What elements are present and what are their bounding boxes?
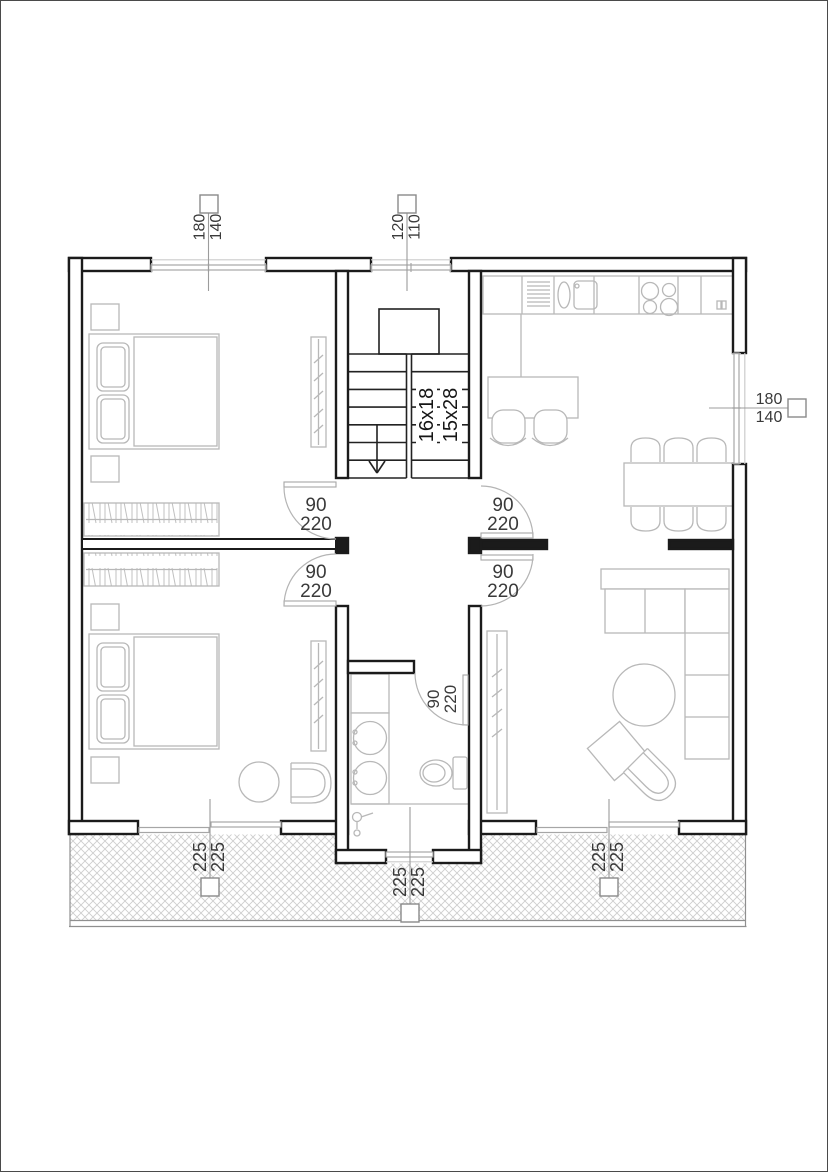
label-door-bathroom: 90 220: [424, 685, 460, 713]
dining-chair-row-top: [631, 438, 726, 462]
wall-right-lower: [733, 464, 746, 834]
wall-right-upper: [733, 258, 746, 353]
wall-hall-east-stub: [469, 538, 481, 553]
label-stair-flight-b: 15x28: [440, 388, 462, 443]
window-top-stairs: [371, 260, 451, 272]
label-window-top-bedroom: 180 140: [192, 214, 226, 241]
wall-bedroom-divider: [82, 539, 336, 549]
living-furniture: [487, 569, 729, 813]
label-door-living: 90 220: [487, 562, 519, 602]
dim-text: 180: [192, 214, 209, 241]
coffee-table: [613, 664, 675, 726]
wardrobe: [84, 503, 219, 536]
stair-landing: [379, 309, 439, 354]
bedroom1-furniture: [84, 304, 326, 536]
label-stair-flight-a: 16x18: [416, 388, 438, 443]
stair-down-arrow-icon: [369, 425, 385, 473]
dim-text: 90: [305, 495, 326, 516]
wall-kitchen-living-stub-right: [669, 540, 733, 549]
label-window-right-kitchen: 180 140: [756, 391, 783, 426]
label-door-kitchen: 90 220: [487, 495, 519, 535]
floor-plan-canvas: 180 140 120 110 180 140 90 220 90 220 90…: [1, 1, 827, 1171]
wall-south-bedroom2-left: [69, 821, 138, 834]
stair-dim-text: 15x28: [440, 388, 462, 443]
dim-text: 220: [487, 514, 519, 535]
nightstand: [91, 604, 119, 630]
double-bed: [89, 634, 219, 749]
wardrobe: [84, 553, 219, 586]
dim-text: 90: [305, 562, 326, 583]
dim-text: 90: [492, 495, 513, 516]
dim-text: 225: [589, 842, 609, 872]
dim-text: 220: [300, 581, 332, 602]
wall-bathroom-south-right: [433, 850, 481, 863]
label-slider-living: 225 225: [589, 842, 627, 872]
dining-chair-row-bottom: [631, 507, 726, 531]
dim-text: 220: [300, 514, 332, 535]
radiator-icon: [311, 337, 326, 447]
dim-text: 225: [390, 867, 410, 897]
toilet-icon: [420, 757, 467, 789]
nightstand: [91, 456, 119, 482]
ref-square-icon: [600, 878, 618, 896]
dim-text: 220: [441, 685, 460, 713]
wall-left: [69, 258, 82, 834]
sliding-door-living: [537, 822, 679, 833]
wall-hall-west-upper: [336, 271, 348, 478]
radiator-icon: [487, 631, 507, 813]
dim-text: 220: [487, 581, 519, 602]
nightstand: [91, 757, 119, 783]
ref-square-icon: [401, 904, 419, 922]
nightstand: [91, 304, 119, 330]
side-table: [239, 762, 279, 802]
label-window-bathroom: 225 225: [390, 867, 428, 897]
double-bed: [89, 334, 219, 449]
kitchen-counter: [483, 276, 733, 314]
dim-text: 120: [390, 214, 407, 241]
bedroom2-furniture: [84, 553, 331, 803]
wall-hall-west-lower: [336, 606, 348, 863]
wall-south-living-right: [679, 821, 746, 834]
ref-square-icon: [200, 195, 218, 213]
dim-text: 225: [208, 842, 228, 872]
dish-drainer-icon: [527, 282, 550, 306]
bar-stool: [490, 410, 526, 446]
dim-text: 110: [407, 214, 424, 240]
floor-plan-page: 180 140 120 110 180 140 90 220 90 220 90…: [0, 0, 828, 1172]
washer: [351, 674, 389, 713]
dim-text: 225: [408, 867, 428, 897]
wall-top-right: [451, 258, 746, 271]
wall-kitchen-living-stub-left: [481, 540, 547, 549]
radiator-icon: [311, 641, 326, 751]
double-vanity: [351, 713, 389, 804]
label-door-bedroom1: 90 220: [300, 495, 332, 535]
tub-chair: [291, 763, 331, 803]
bar-stool: [532, 410, 568, 446]
kitchen-furniture: [483, 276, 734, 531]
dim-text: 90: [492, 562, 513, 583]
label-door-bedroom2: 90 220: [300, 562, 332, 602]
stair-dim-text: 16x18: [416, 388, 438, 443]
dim-text: 225: [607, 842, 627, 872]
wall-hall-east-lower: [469, 606, 481, 863]
wall-bathroom-south-left: [336, 850, 386, 863]
wall-hall-east-upper: [469, 271, 481, 478]
dim-text: 140: [756, 409, 783, 426]
ref-square-icon: [788, 399, 806, 417]
wall-top-middle: [266, 258, 371, 271]
dim-text: 180: [756, 391, 783, 408]
ref-square-icon: [201, 878, 219, 896]
label-window-top-stairs: 120 110: [390, 214, 424, 241]
ref-square-icon: [398, 195, 416, 213]
dim-text: 225: [190, 842, 210, 872]
wall-hall-west-stub: [336, 538, 348, 553]
wall-bathroom-north: [348, 661, 414, 673]
label-slider-bedroom2: 225 225: [190, 842, 228, 872]
dining-table: [624, 463, 734, 506]
dim-text: 140: [208, 214, 225, 241]
